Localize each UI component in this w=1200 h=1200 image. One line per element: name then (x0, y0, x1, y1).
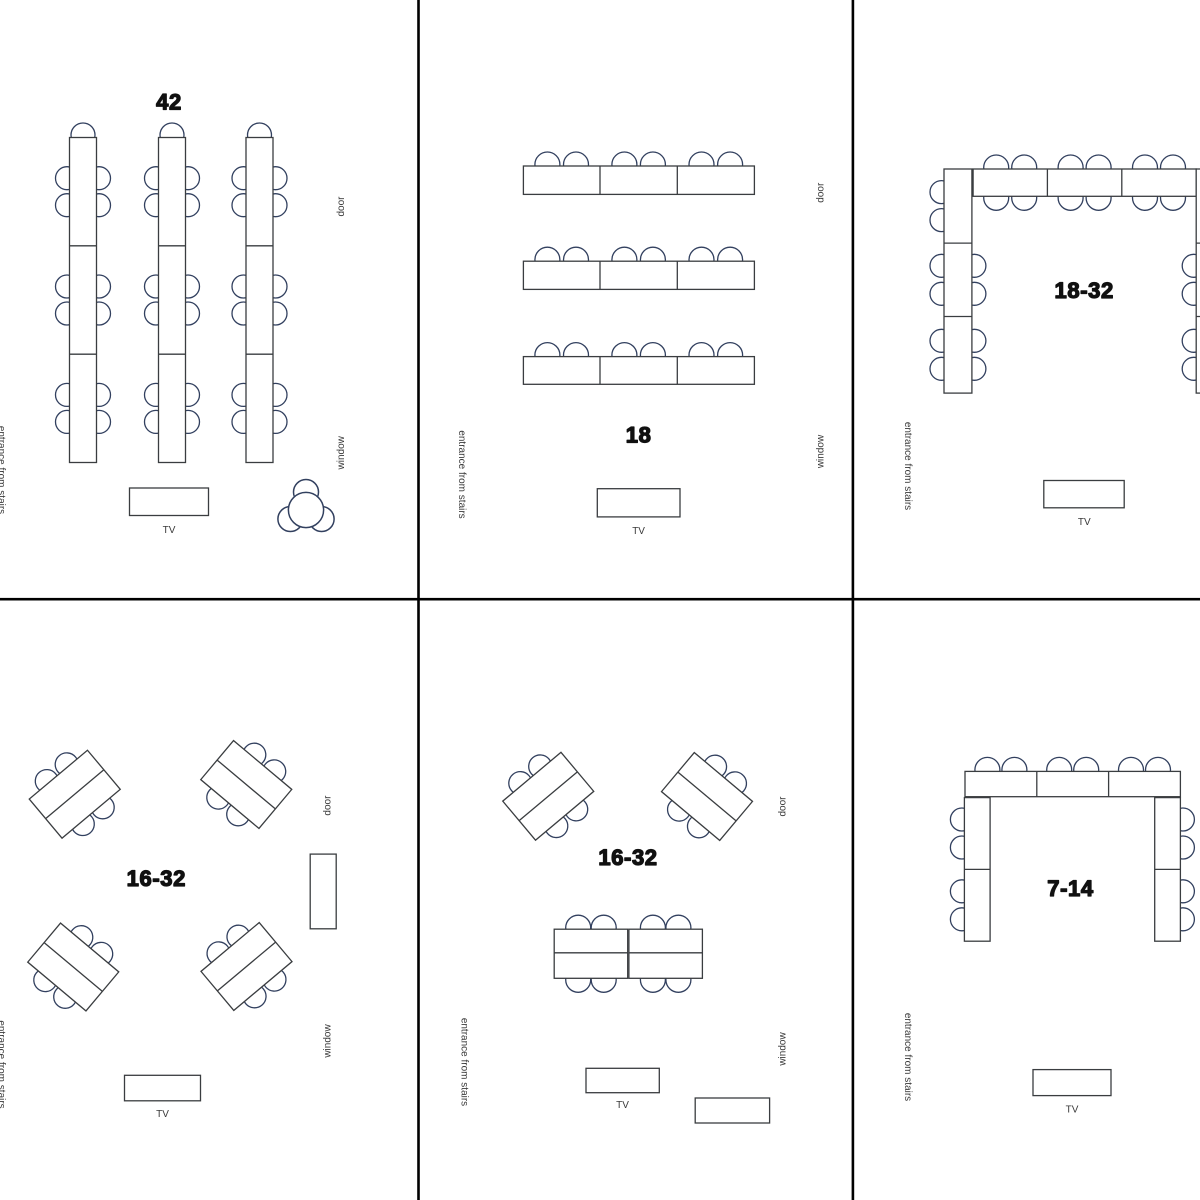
svg-text:entrance from stairs: entrance from stairs (902, 1013, 913, 1101)
svg-text:entrance from stairs: entrance from stairs (456, 430, 467, 518)
svg-text:TV: TV (1066, 1104, 1079, 1115)
svg-text:TV: TV (632, 526, 645, 537)
svg-text:18-32: 18-32 (1055, 278, 1114, 303)
svg-text:door: door (336, 196, 347, 217)
svg-text:window: window (778, 1032, 789, 1067)
svg-text:entrance from stairs: entrance from stairs (902, 422, 913, 510)
svg-text:16-32: 16-32 (127, 866, 186, 891)
svg-text:entrance from stairs: entrance from stairs (459, 1018, 470, 1106)
svg-text:entrance from stairs: entrance from stairs (0, 1020, 7, 1108)
svg-text:TV: TV (156, 1109, 169, 1120)
svg-text:window: window (336, 435, 347, 470)
svg-text:door: door (816, 182, 827, 203)
svg-text:TV: TV (1078, 517, 1091, 528)
svg-text:window: window (323, 1024, 334, 1059)
svg-text:door: door (323, 795, 334, 816)
svg-text:7-14: 7-14 (1047, 876, 1094, 901)
svg-text:16-32: 16-32 (598, 845, 657, 870)
svg-text:window: window (816, 434, 827, 469)
svg-text:18: 18 (626, 423, 652, 448)
svg-text:entrance from stairs: entrance from stairs (0, 426, 7, 514)
svg-text:TV: TV (616, 1100, 629, 1111)
svg-text:42: 42 (156, 90, 182, 115)
svg-text:door: door (778, 796, 789, 817)
svg-text:TV: TV (163, 525, 176, 536)
